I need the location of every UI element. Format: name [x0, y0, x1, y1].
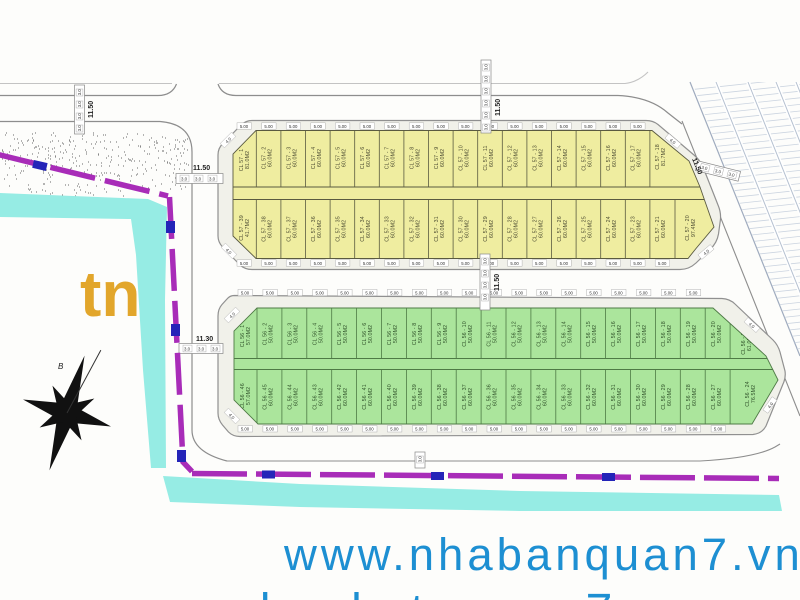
svg-text:5.00: 5.00: [664, 427, 673, 432]
svg-text:5.00: 5.00: [390, 427, 399, 432]
svg-text:5.00: 5.00: [614, 427, 623, 432]
svg-text:50.0M2: 50.0M2: [642, 325, 648, 343]
svg-text:5.00: 5.00: [365, 427, 374, 432]
svg-text:5.00: 5.00: [658, 261, 667, 266]
svg-text:60.0M2: 60.0M2: [292, 149, 298, 167]
svg-text:60.0M2: 60.0M2: [642, 388, 648, 406]
svg-text:nhadatquan7.vn: nhadatquan7.vn: [222, 585, 720, 600]
svg-text:5.00: 5.00: [515, 427, 524, 432]
svg-text:5.00: 5.00: [363, 261, 372, 266]
svg-text:5.00: 5.00: [264, 261, 273, 266]
svg-text:60.0M2: 60.0M2: [317, 220, 323, 238]
svg-text:50.0M2: 50.0M2: [717, 325, 723, 343]
svg-text:60.0M2: 60.0M2: [415, 220, 421, 238]
svg-text:60.0M2: 60.0M2: [268, 220, 274, 238]
svg-text:50.0M2: 50.0M2: [518, 325, 524, 343]
svg-text:3.0: 3.0: [181, 176, 188, 181]
svg-text:60.0M2: 60.0M2: [268, 149, 274, 167]
svg-text:5.00: 5.00: [363, 124, 372, 129]
svg-text:5.00: 5.00: [412, 261, 421, 266]
svg-text:60.0M2: 60.0M2: [393, 388, 399, 406]
svg-text:57.0M2: 57.0M2: [246, 387, 252, 405]
svg-text:60.0M2: 60.0M2: [567, 388, 573, 406]
svg-text:60.0M2: 60.0M2: [514, 220, 520, 238]
svg-text:60.0M2: 60.0M2: [717, 388, 723, 406]
svg-text:5.00: 5.00: [440, 427, 449, 432]
svg-text:60.0M2: 60.0M2: [518, 388, 524, 406]
svg-text:3.0: 3.0: [484, 64, 489, 71]
svg-text:3.0: 3.0: [198, 346, 205, 351]
svg-text:60.0M2: 60.0M2: [592, 388, 598, 406]
svg-text:60.0M2: 60.0M2: [342, 220, 348, 238]
svg-text:5.00: 5.00: [291, 427, 300, 432]
svg-text:60.0M2: 60.0M2: [418, 388, 424, 406]
svg-text:5.00: 5.00: [266, 290, 275, 295]
svg-text:5.00: 5.00: [465, 427, 474, 432]
svg-text:5.00: 5.00: [437, 261, 446, 266]
svg-text:5.00: 5.00: [689, 427, 698, 432]
svg-text:60.0M2: 60.0M2: [440, 149, 446, 167]
svg-text:3.0: 3.0: [77, 89, 82, 96]
svg-text:50.0M2: 50.0M2: [368, 325, 374, 343]
svg-text:60.0M2: 60.0M2: [368, 388, 374, 406]
svg-text:3.0: 3.0: [483, 294, 488, 301]
svg-text:76.5M2: 76.5M2: [751, 385, 757, 403]
svg-text:5.00: 5.00: [440, 290, 449, 295]
svg-text:60.0M2: 60.0M2: [292, 220, 298, 238]
svg-text:5.00: 5.00: [633, 124, 642, 129]
svg-text:50.0M2: 50.0M2: [343, 325, 349, 343]
svg-text:3.0: 3.0: [209, 176, 216, 181]
svg-text:60.0M2: 60.0M2: [661, 220, 667, 238]
svg-text:5.00: 5.00: [241, 427, 250, 432]
svg-text:50.0M2: 50.0M2: [294, 325, 300, 343]
svg-text:60.0M2: 60.0M2: [538, 149, 544, 167]
svg-text:5.00: 5.00: [535, 124, 544, 129]
svg-text:60.0M2: 60.0M2: [468, 388, 474, 406]
svg-text:5.00: 5.00: [639, 427, 648, 432]
svg-text:5.00: 5.00: [415, 427, 424, 432]
svg-text:5.00: 5.00: [437, 124, 446, 129]
svg-text:5.00: 5.00: [314, 124, 323, 129]
svg-text:60.0M2: 60.0M2: [318, 388, 324, 406]
svg-text:3.0: 3.0: [77, 125, 82, 132]
svg-text:3.0: 3.0: [483, 270, 488, 277]
svg-text:60.0M2: 60.0M2: [440, 220, 446, 238]
svg-text:5.00: 5.00: [314, 261, 323, 266]
svg-text:3.0: 3.0: [77, 101, 82, 108]
svg-text:3.0: 3.0: [484, 100, 489, 107]
svg-text:5.00: 5.00: [490, 427, 499, 432]
svg-text:60.0M2: 60.0M2: [514, 149, 520, 167]
svg-text:B: B: [58, 362, 64, 371]
svg-text:5.00: 5.00: [338, 124, 347, 129]
svg-text:50.0M2: 50.0M2: [567, 325, 573, 343]
svg-text:5.00: 5.00: [515, 290, 524, 295]
svg-text:5.00: 5.00: [340, 427, 349, 432]
svg-text:3.0: 3.0: [484, 112, 489, 119]
svg-text:60.0M2: 60.0M2: [617, 388, 623, 406]
svg-text:50.0M2: 50.0M2: [443, 325, 449, 343]
svg-text:3.0: 3.0: [212, 346, 219, 351]
svg-text:5.00: 5.00: [240, 124, 249, 129]
svg-text:50.0M2: 50.0M2: [418, 325, 424, 343]
svg-text:60.0M2: 60.0M2: [612, 149, 618, 167]
svg-text:97.4M2: 97.4M2: [691, 219, 697, 237]
svg-text:3.0: 3.0: [195, 176, 202, 181]
svg-text:60.0M2: 60.0M2: [465, 149, 471, 167]
svg-text:5.00: 5.00: [289, 124, 298, 129]
svg-text:5.00: 5.00: [412, 124, 421, 129]
svg-text:5.00: 5.00: [584, 124, 593, 129]
svg-text:60.0M2: 60.0M2: [493, 388, 499, 406]
svg-text:50.0M2: 50.0M2: [269, 325, 275, 343]
svg-text:5.00: 5.00: [340, 290, 349, 295]
svg-text:tn: tn: [80, 258, 140, 330]
svg-text:60.0M2: 60.0M2: [692, 388, 698, 406]
svg-text:60.0M2: 60.0M2: [637, 220, 643, 238]
svg-text:3.0: 3.0: [484, 88, 489, 95]
svg-text:57.0M2: 57.0M2: [246, 327, 252, 345]
svg-text:5.00: 5.00: [609, 124, 618, 129]
svg-text:50.0M2: 50.0M2: [667, 325, 673, 343]
svg-text:11.50: 11.50: [495, 99, 502, 116]
svg-text:60.0M2: 60.0M2: [269, 388, 275, 406]
svg-text:5.00: 5.00: [390, 290, 399, 295]
svg-text:60.0M2: 60.0M2: [489, 149, 495, 167]
svg-text:50.0M2: 50.0M2: [542, 325, 548, 343]
svg-text:5.00: 5.00: [264, 124, 273, 129]
svg-text:60.0M2: 60.0M2: [667, 388, 673, 406]
svg-text:60.0M2: 60.0M2: [542, 388, 548, 406]
svg-text:11.50: 11.50: [88, 101, 95, 118]
svg-text:5.00: 5.00: [633, 261, 642, 266]
svg-text:5.00: 5.00: [540, 290, 549, 295]
svg-text:60.0M2: 60.0M2: [343, 388, 349, 406]
svg-text:60.0M2: 60.0M2: [415, 149, 421, 167]
svg-text:5.00: 5.00: [565, 427, 574, 432]
svg-text:5.00: 5.00: [510, 261, 519, 266]
svg-text:5.00: 5.00: [365, 290, 374, 295]
svg-text:11.50: 11.50: [494, 274, 501, 291]
svg-text:5.00: 5.00: [560, 261, 569, 266]
svg-text:5.00: 5.00: [535, 261, 544, 266]
svg-text:5.00: 5.00: [510, 124, 519, 129]
svg-text:50.0M2: 50.0M2: [468, 325, 474, 343]
svg-text:41.7M2: 41.7M2: [245, 219, 251, 237]
svg-text:5.00: 5.00: [316, 290, 325, 295]
svg-text:www.nhabanquan7.vn: www.nhabanquan7.vn: [283, 529, 800, 580]
svg-text:60.0M2: 60.0M2: [588, 149, 594, 167]
svg-text:5.00: 5.00: [614, 290, 623, 295]
svg-text:50.0M2: 50.0M2: [617, 325, 623, 343]
svg-text:3.0: 3.0: [483, 282, 488, 289]
svg-text:5.00: 5.00: [387, 261, 396, 266]
svg-text:5.00: 5.00: [316, 427, 325, 432]
svg-text:5.00: 5.00: [241, 290, 250, 295]
svg-text:5.00: 5.00: [465, 290, 474, 295]
svg-text:3.0: 3.0: [418, 456, 423, 463]
svg-text:5.00: 5.00: [689, 290, 698, 295]
svg-text:60.0M2: 60.0M2: [563, 149, 569, 167]
svg-text:5.00: 5.00: [338, 261, 347, 266]
svg-text:5.00: 5.00: [560, 124, 569, 129]
svg-text:60.0M2: 60.0M2: [294, 388, 300, 406]
svg-text:60.0M2: 60.0M2: [391, 220, 397, 238]
svg-text:5.00: 5.00: [589, 290, 598, 295]
svg-text:60.0M2: 60.0M2: [489, 220, 495, 238]
svg-text:60.0M2: 60.0M2: [366, 220, 372, 238]
svg-text:50.0M2: 50.0M2: [393, 325, 399, 343]
svg-text:11.50: 11.50: [193, 165, 210, 172]
svg-text:60.0M2: 60.0M2: [612, 220, 618, 238]
svg-text:81.7M2: 81.7M2: [661, 148, 667, 166]
svg-text:60.0M2: 60.0M2: [342, 149, 348, 167]
svg-text:50.0M2: 50.0M2: [318, 325, 324, 343]
svg-text:5.00: 5.00: [387, 124, 396, 129]
svg-text:11.30: 11.30: [196, 336, 213, 343]
svg-text:5.00: 5.00: [415, 290, 424, 295]
svg-text:60.0M2: 60.0M2: [563, 220, 569, 238]
svg-text:50.0M2: 50.0M2: [692, 325, 698, 343]
svg-text:60.0M2: 60.0M2: [465, 220, 471, 238]
svg-text:5.00: 5.00: [714, 427, 723, 432]
svg-text:50.0M2: 50.0M2: [592, 325, 598, 343]
svg-text:5.00: 5.00: [609, 261, 618, 266]
svg-text:3.0: 3.0: [77, 113, 82, 120]
svg-text:5.00: 5.00: [584, 261, 593, 266]
svg-text:3.0: 3.0: [184, 346, 191, 351]
svg-text:5.00: 5.00: [664, 290, 673, 295]
svg-text:5.00: 5.00: [461, 124, 470, 129]
svg-text:5.00: 5.00: [291, 290, 300, 295]
svg-text:5.00: 5.00: [565, 290, 574, 295]
svg-text:5.00: 5.00: [589, 427, 598, 432]
svg-text:60.0M2: 60.0M2: [317, 149, 323, 167]
svg-text:5.00: 5.00: [461, 261, 470, 266]
svg-text:60.0M2: 60.0M2: [588, 220, 594, 238]
svg-text:5.00: 5.00: [289, 261, 298, 266]
svg-text:3.0: 3.0: [483, 258, 488, 265]
svg-text:60.0M2: 60.0M2: [366, 149, 372, 167]
svg-text:60.0M2: 60.0M2: [637, 149, 643, 167]
svg-text:81.0M2: 81.0M2: [245, 151, 251, 169]
svg-text:5.00: 5.00: [266, 427, 275, 432]
svg-text:50.0M2: 50.0M2: [493, 325, 499, 343]
svg-text:5.00: 5.00: [639, 290, 648, 295]
svg-text:3.0: 3.0: [484, 76, 489, 83]
svg-text:60.0M2: 60.0M2: [538, 220, 544, 238]
svg-text:60.0M2: 60.0M2: [391, 149, 397, 167]
svg-text:5.00: 5.00: [540, 427, 549, 432]
svg-text:3.0: 3.0: [484, 124, 489, 131]
svg-text:60.0M2: 60.0M2: [443, 388, 449, 406]
svg-text:5.00: 5.00: [240, 261, 249, 266]
